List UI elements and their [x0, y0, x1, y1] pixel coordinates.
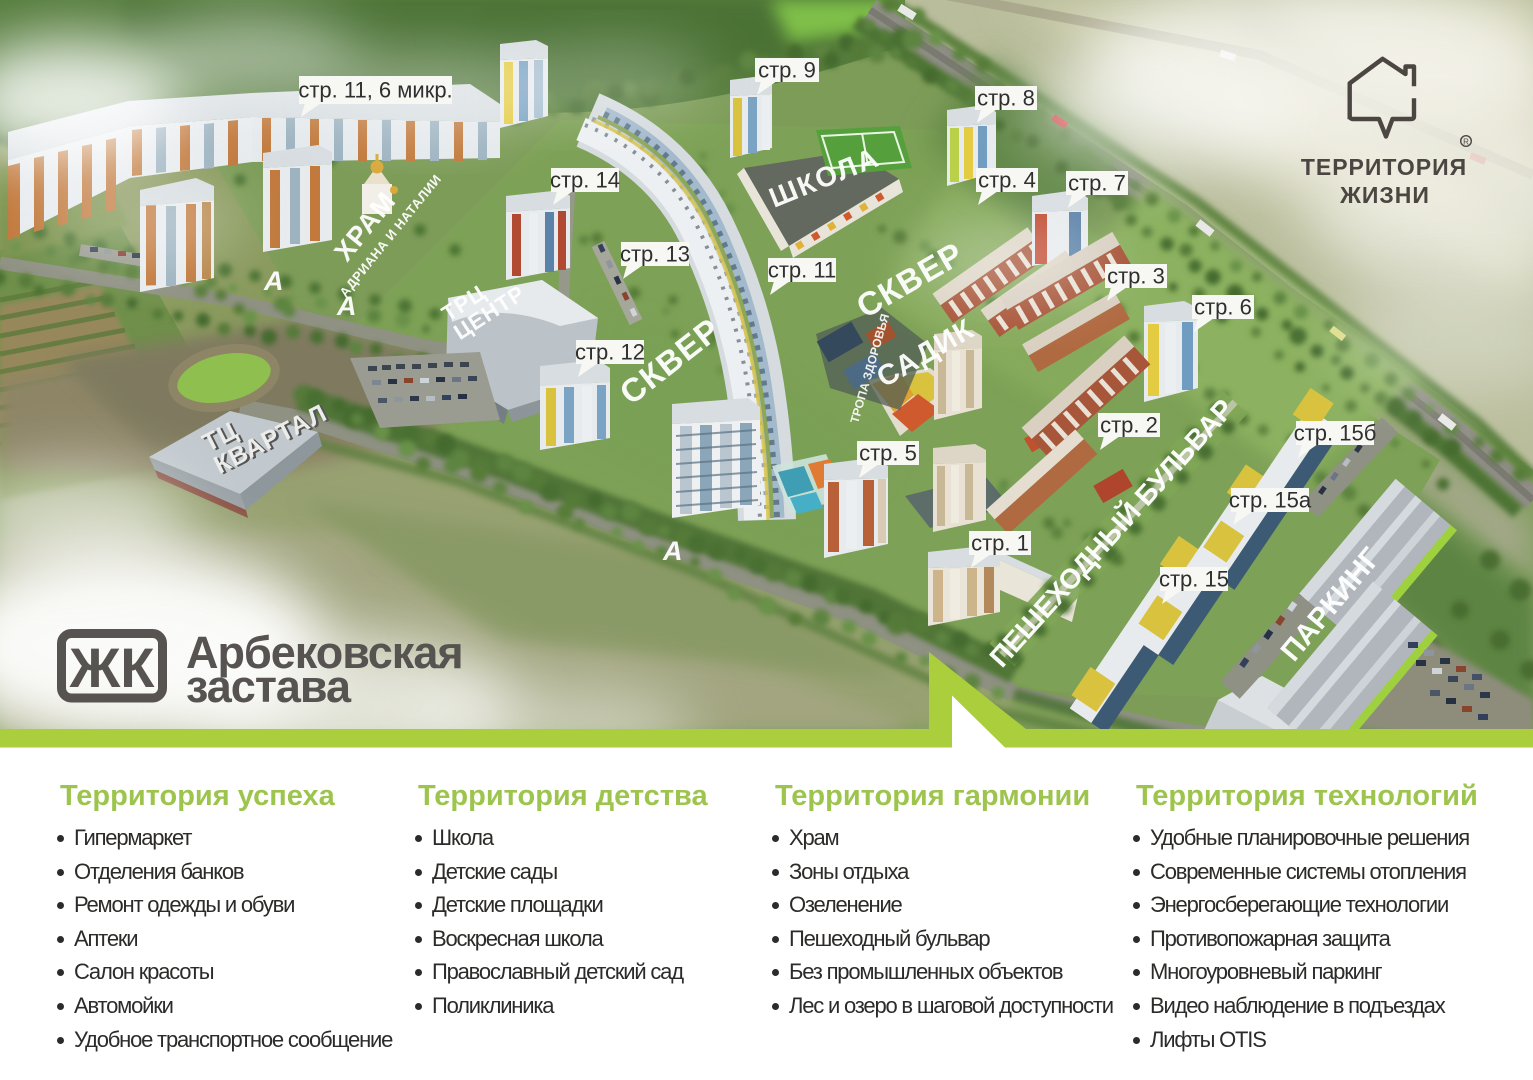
svg-text:А: А — [662, 536, 683, 566]
svg-text:R: R — [1463, 138, 1469, 147]
svg-text:стр. 2: стр. 2 — [1100, 413, 1158, 438]
svg-text:стр. 3: стр. 3 — [1107, 264, 1165, 289]
svg-text:стр. 11: стр. 11 — [768, 258, 836, 283]
svg-text:стр. 8: стр. 8 — [977, 86, 1035, 111]
svg-text:стр. 15: стр. 15 — [1159, 567, 1229, 592]
svg-text:ТЕРРИТОРИЯ: ТЕРРИТОРИЯ — [1301, 154, 1467, 180]
svg-text:ЖИЗНИ: ЖИЗНИ — [1339, 182, 1430, 208]
svg-text:стр. 6: стр. 6 — [1194, 295, 1252, 320]
svg-text:стр. 9: стр. 9 — [758, 58, 816, 83]
svg-text:стр. 1: стр. 1 — [971, 531, 1029, 556]
svg-text:стр. 15а: стр. 15а — [1229, 488, 1312, 513]
svg-text:стр. 12: стр. 12 — [575, 340, 645, 365]
svg-text:А: А — [263, 266, 284, 296]
svg-text:стр. 11, 6 микр.: стр. 11, 6 микр. — [298, 78, 452, 103]
svg-text:А: А — [336, 291, 357, 321]
svg-text:стр. 5: стр. 5 — [859, 441, 917, 466]
svg-text:стр. 4: стр. 4 — [978, 168, 1036, 193]
svg-text:застава: застава — [186, 661, 352, 712]
svg-text:стр. 15б: стр. 15б — [1294, 421, 1377, 446]
svg-text:ЖК: ЖК — [69, 636, 156, 699]
svg-text:стр. 13: стр. 13 — [620, 242, 690, 267]
svg-text:стр. 14: стр. 14 — [550, 168, 620, 193]
svg-text:стр. 7: стр. 7 — [1068, 171, 1126, 196]
